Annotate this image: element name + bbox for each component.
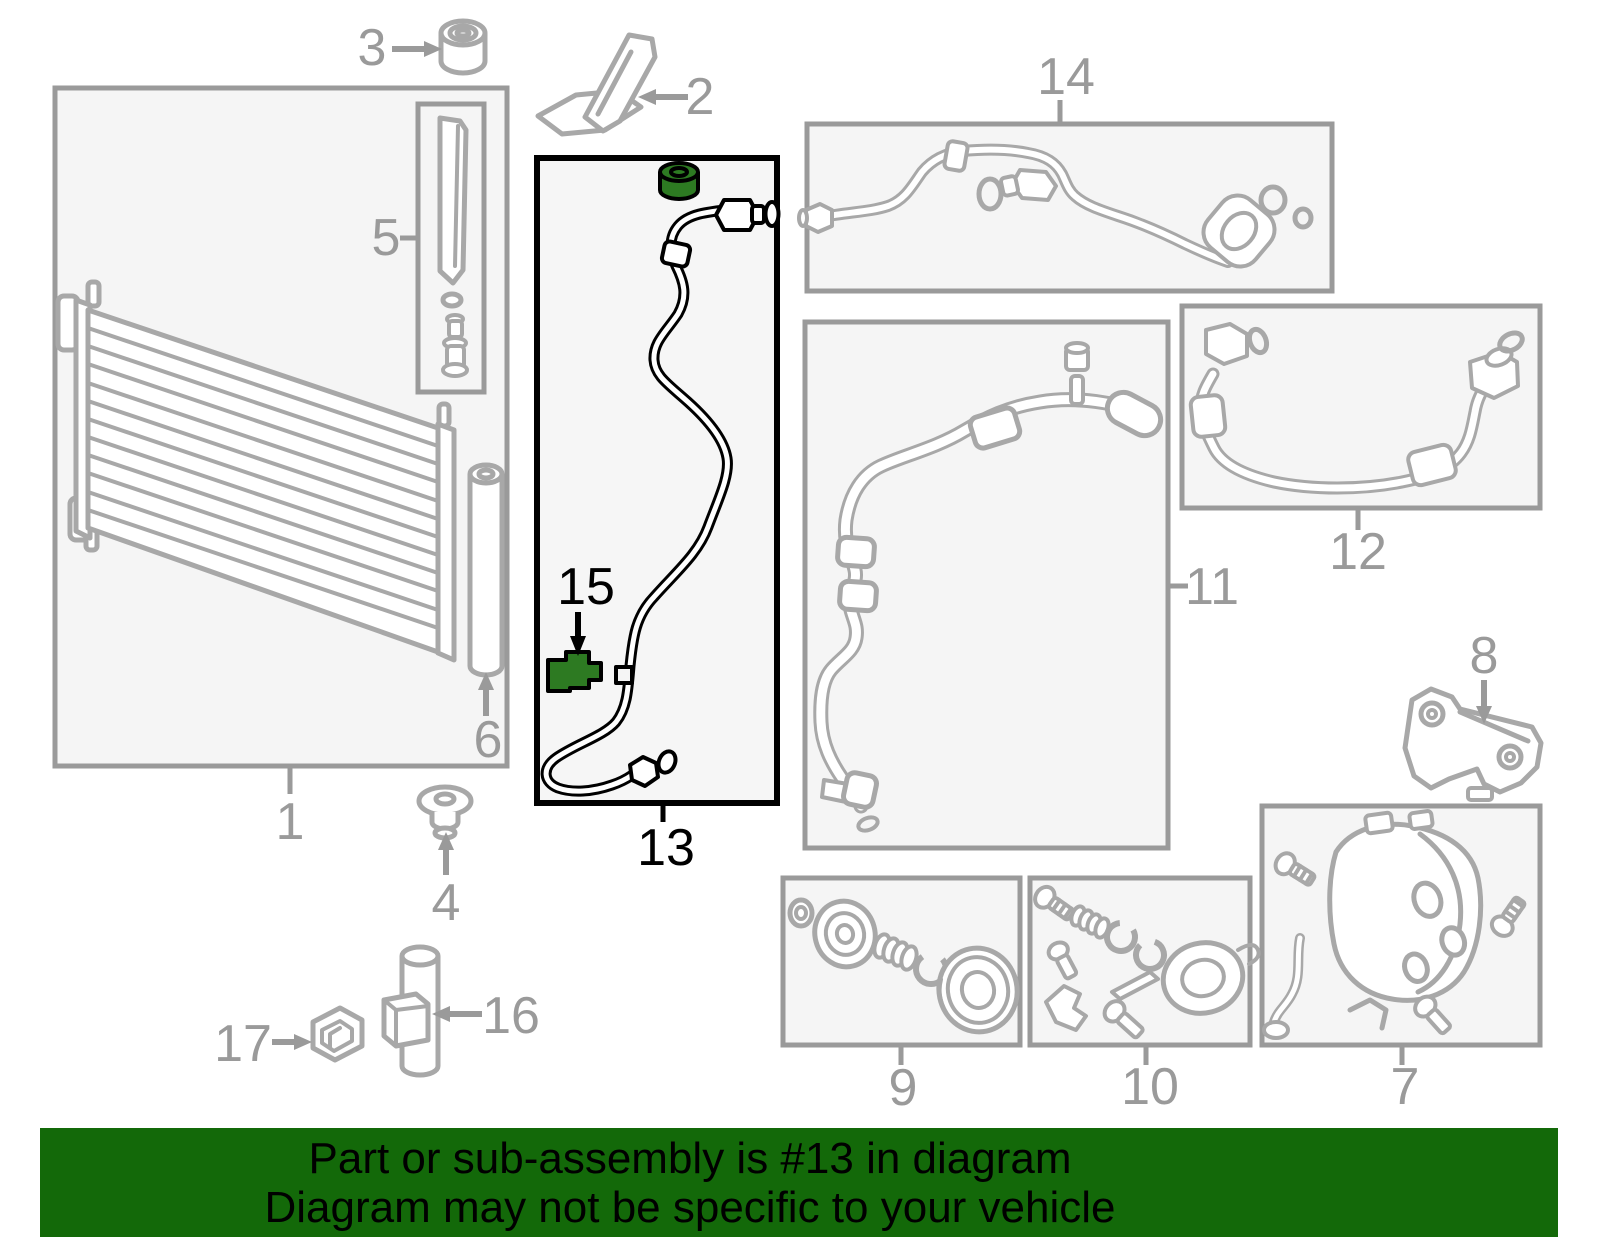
parts-diagram-page: 3 2 5 14 6 1 4 13 15 12 11 8 16 17 9 10 … (0, 0, 1600, 1249)
part-label-8[interactable]: 8 (1470, 630, 1499, 682)
receiver-drier-icon (470, 465, 502, 675)
part-label-4[interactable]: 4 (432, 877, 461, 929)
part-label-2[interactable]: 2 (686, 71, 715, 123)
sleeve-icon-16 (384, 947, 438, 1075)
part-label-3[interactable]: 3 (358, 22, 387, 74)
part-label-9[interactable]: 9 (889, 1062, 918, 1114)
banner-line-2: Diagram may not be specific to your vehi… (264, 1183, 1115, 1232)
part-label-6[interactable]: 6 (474, 714, 503, 766)
banner-line-1: Part or sub-assembly is #13 in diagram (309, 1134, 1072, 1183)
part-label-12[interactable]: 12 (1329, 526, 1387, 578)
mount-bracket-icon-8 (1405, 689, 1541, 800)
part-box-13-highlighted[interactable] (537, 158, 777, 803)
part-label-10[interactable]: 10 (1121, 1061, 1179, 1113)
bracket-icon-2 (538, 35, 655, 134)
grommet-icon-4 (419, 787, 471, 838)
part-label-13-highlighted[interactable]: 13 (637, 822, 695, 874)
part-label-14[interactable]: 14 (1037, 51, 1095, 103)
part-label-11[interactable]: 11 (1185, 561, 1239, 613)
grommet-icon-3 (441, 21, 485, 73)
part-label-7[interactable]: 7 (1391, 1061, 1420, 1113)
part-label-16[interactable]: 16 (482, 990, 540, 1042)
grommet-icon-13-highlight (660, 163, 698, 199)
part-label-15-highlighted[interactable]: 15 (557, 561, 615, 613)
part-label-5[interactable]: 5 (372, 212, 401, 264)
part-label-1[interactable]: 1 (276, 796, 305, 848)
highlight-banner: Part or sub-assembly is #13 in diagram D… (40, 1128, 1558, 1237)
part-label-17[interactable]: 17 (214, 1018, 272, 1070)
bracket-icon-17 (313, 1008, 362, 1060)
